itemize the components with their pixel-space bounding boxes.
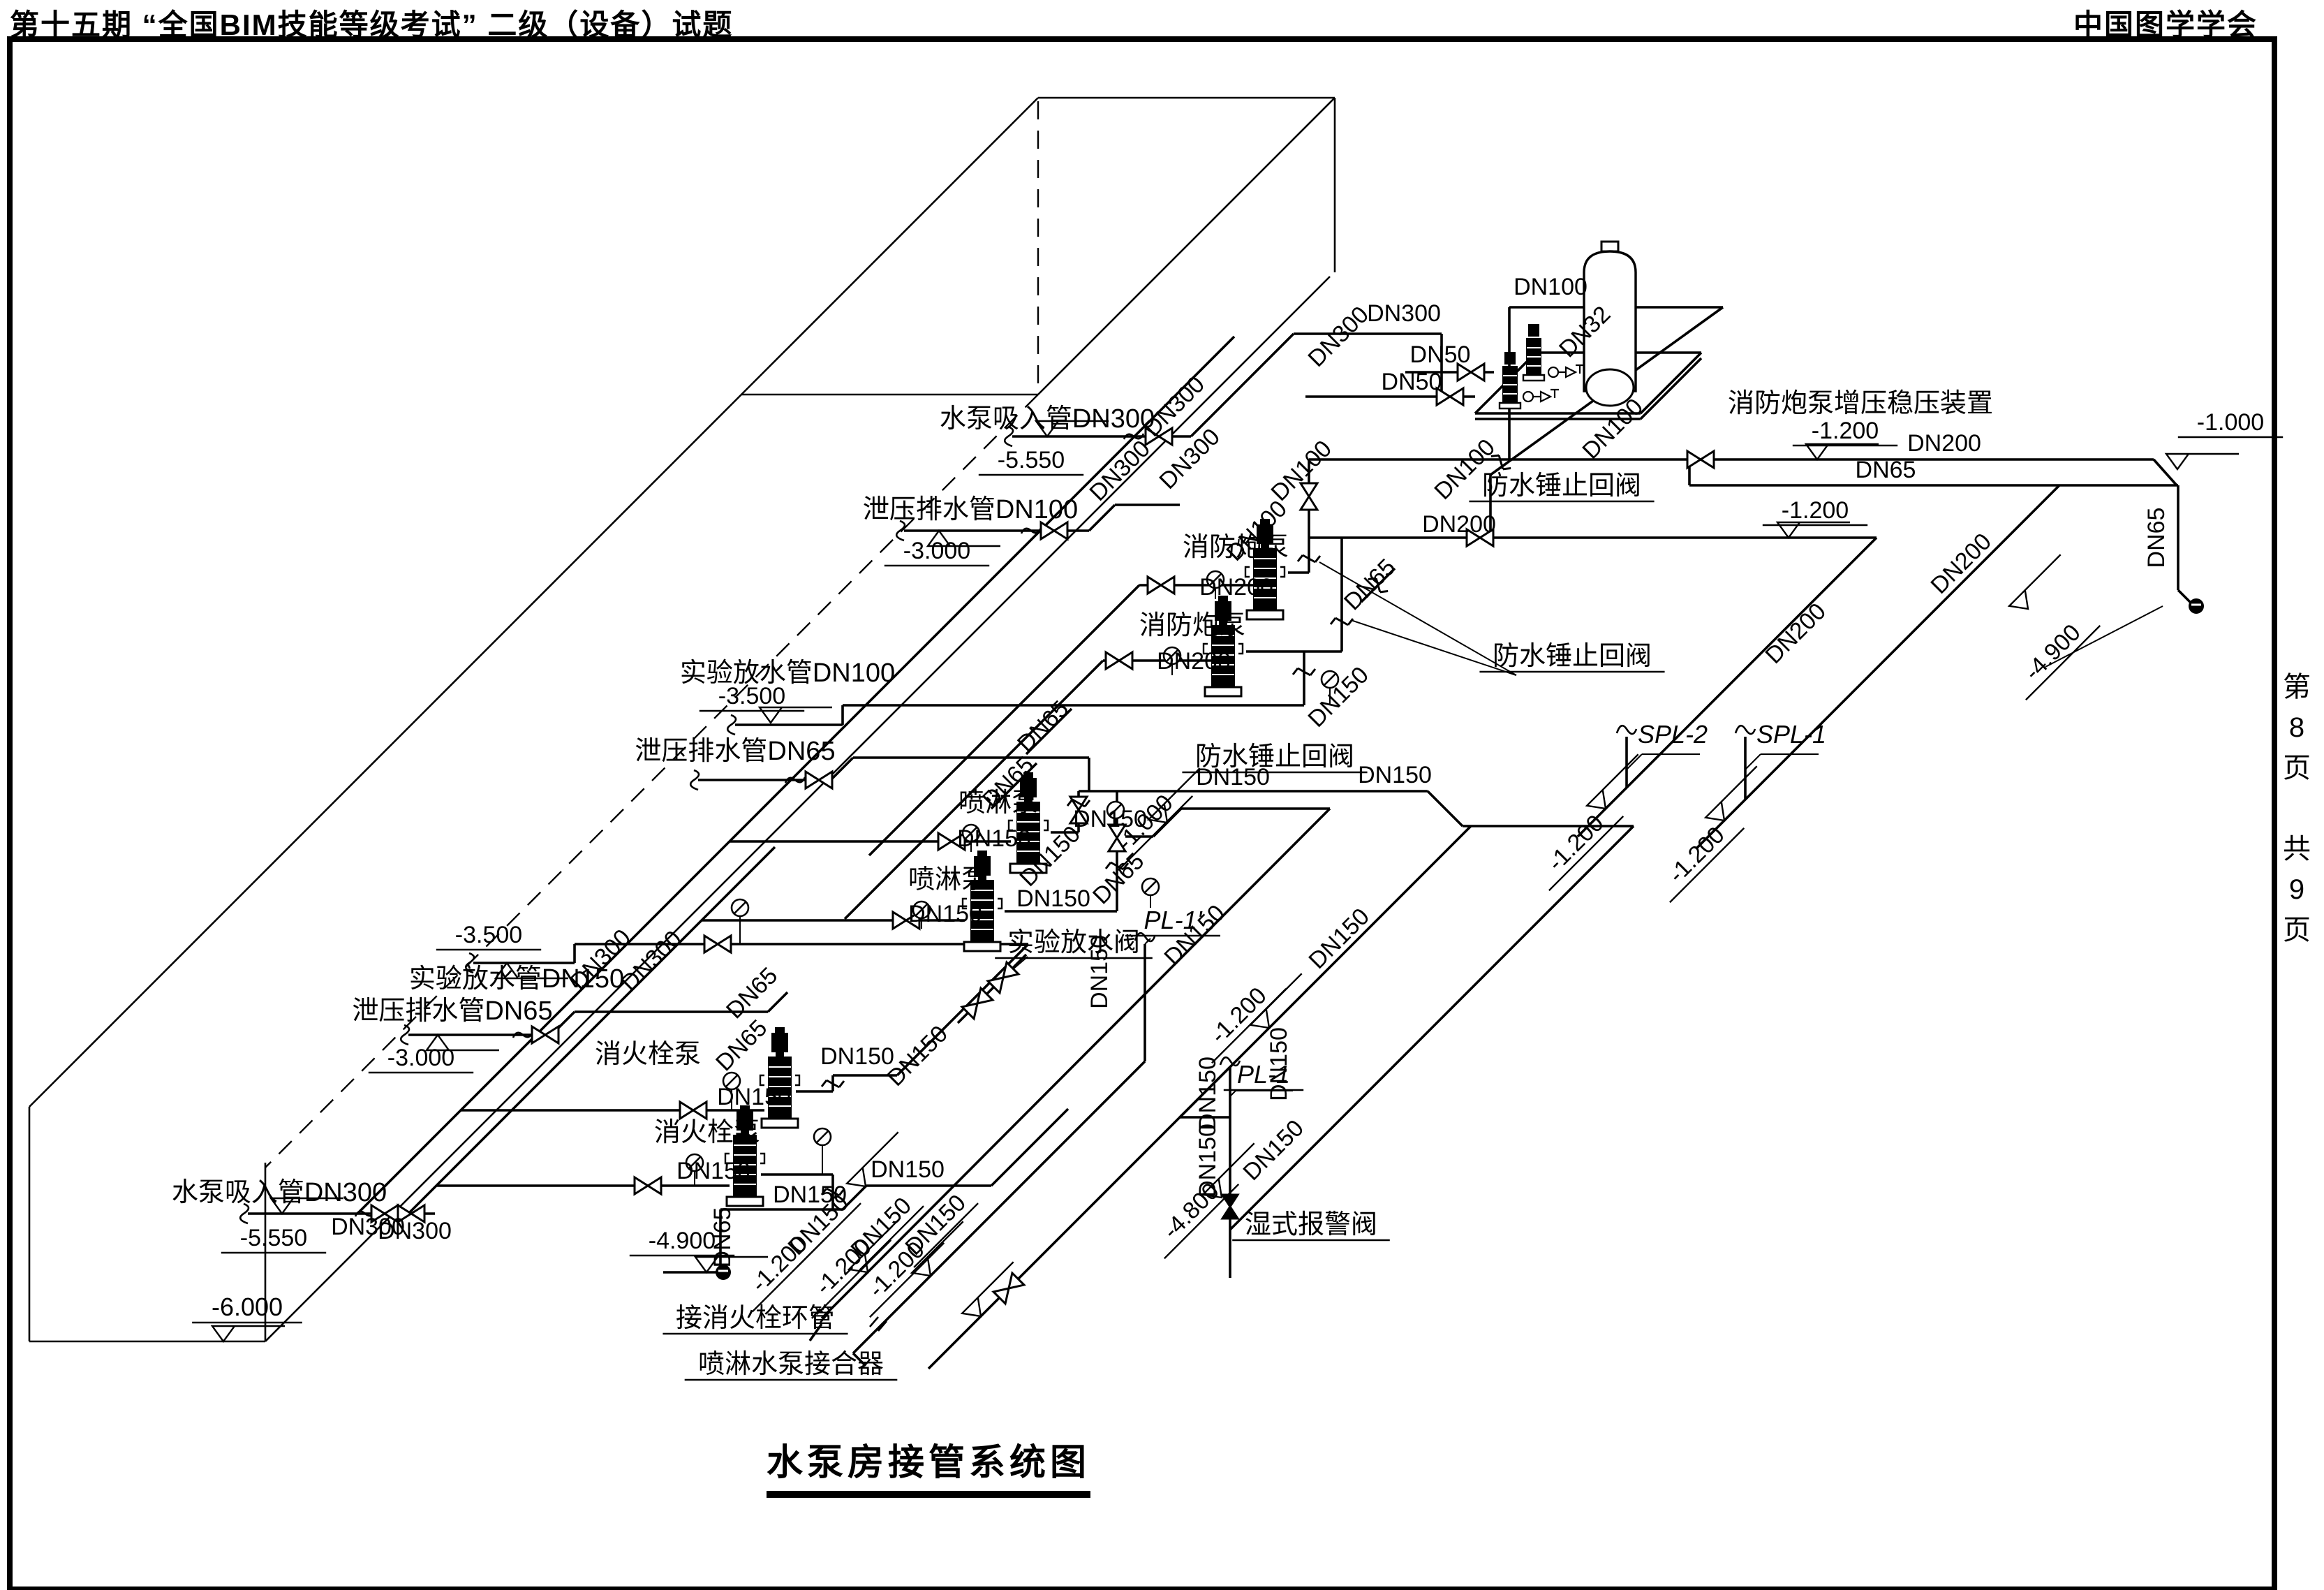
pipe-label: SPL-1 (1756, 720, 1826, 749)
shape (964, 942, 1000, 951)
pipe-label: DN150 (1238, 1114, 1309, 1186)
label-text: DN150 (1086, 935, 1113, 1009)
shape (978, 851, 986, 857)
label-text: DN100 (1513, 274, 1587, 300)
pipe-label: DN65 (709, 1207, 736, 1268)
label-text: DN300 (378, 1218, 452, 1244)
pipe-label: DN200 (1199, 574, 1273, 601)
pipe-break-icon (727, 715, 736, 735)
elevation-flag-icon (962, 1262, 1024, 1324)
label-text: DN65 (711, 1015, 772, 1076)
pipe-line (1641, 353, 1701, 413)
pipe-label: DN150 (1196, 764, 1270, 790)
label-text: DN100 (1266, 435, 1337, 506)
pipe-break-icon (1617, 726, 1636, 734)
pipe-label: -4.800 (1145, 1165, 1239, 1259)
shape (704, 936, 731, 952)
shape (727, 1197, 763, 1206)
label-text: DN150 (1196, 764, 1270, 790)
pipe-label: -3.500 (436, 922, 541, 950)
shape (1142, 878, 1159, 895)
shape (776, 1052, 783, 1057)
pipe-label: DN300 (1303, 301, 1374, 372)
shape (1523, 390, 1559, 402)
pipe-label: DN150 (871, 1156, 945, 1183)
valve-icon (806, 772, 832, 788)
label-text: -3.000 (903, 538, 970, 564)
pipe-label: DN65 (711, 1015, 772, 1076)
label-text: 实验放水管DN100 (680, 658, 895, 688)
pipe-label: DN200 (1925, 528, 1997, 599)
pipe-label: DN300 (1367, 300, 1441, 327)
pipe-label: -1.000 (2178, 409, 2283, 437)
shape (1505, 353, 1515, 364)
label-text: -3.000 (387, 1045, 454, 1071)
label-text: 湿式报警阀 (1245, 1210, 1377, 1239)
label-text: DN300 (1084, 435, 1155, 506)
label-text: 水泵吸入管DN300 (172, 1178, 387, 1207)
label-text: -1.200 (1664, 822, 1730, 888)
pipe-label: 喷淋水泵接合器 (685, 1350, 898, 1380)
label-text: 防水锤止回阀 (1493, 642, 1652, 671)
label-text: DN300 (1303, 301, 1374, 372)
pipe-line (1428, 791, 1463, 826)
pipe-label: DN150 (1358, 762, 1432, 788)
pressure-gauge-icon (1142, 878, 1159, 895)
elevation-flag-icon (2166, 454, 2239, 469)
pipe-label: -3.000 (885, 538, 989, 566)
pipe-label: -1.200 (1530, 797, 1624, 891)
valve-icon (1148, 577, 1174, 594)
shape (1041, 522, 1067, 539)
pipe-label: 泄压排水管DN65 (635, 737, 835, 766)
shape (1617, 726, 1636, 734)
pipe-line (1578, 538, 1877, 837)
pipe-label: DN150 (676, 1158, 750, 1184)
label-text: -3.500 (455, 922, 522, 948)
label-text: 泄压排水管DN100 (863, 495, 1078, 524)
label-text: 实验放水阀 (1007, 928, 1140, 957)
elevation-flag-icon (1705, 766, 1768, 828)
pipe-label: DN65 (721, 962, 783, 1024)
label-text: SPL-2 (1638, 720, 1708, 749)
pipe-label: 消防炮泵增压稳压装置 (1728, 389, 1993, 418)
shape (776, 1028, 784, 1033)
label-text: -3.500 (718, 683, 785, 709)
pipe-label: DN150 (1303, 903, 1375, 974)
label-text: DN200 (1422, 511, 1496, 538)
label-text: -6.000 (212, 1293, 283, 1321)
pipe-label: -1.200 (1650, 809, 1745, 903)
shape (680, 1102, 706, 1119)
label-text: -5.550 (998, 447, 1065, 473)
label-text: 水泵吸入管DN300 (940, 404, 1155, 434)
pipe-line (2178, 590, 2191, 603)
pipe-label: DN200 (1157, 648, 1231, 675)
pipe-label: DN65 (1856, 457, 1916, 483)
label-text: DN65 (1088, 848, 1149, 909)
elevation-flag-icon (2009, 554, 2071, 617)
pressure-gauge-icon (814, 1128, 831, 1145)
pipe-label: DN200 (1422, 511, 1496, 538)
shape (1735, 726, 1755, 734)
label-text: DN150 (871, 1156, 945, 1183)
diagram-title: 水泵房接管系统图 (767, 1433, 1090, 1498)
label-text: -1.000 (2197, 409, 2264, 436)
label-text: DN65 (1339, 554, 1400, 615)
label-text: -1.200 (1812, 418, 1879, 444)
pipe-label: -1.200 (1763, 497, 1867, 525)
pipe-label: 消防炮泵 (1139, 611, 1245, 640)
label-text: DN150 (1238, 1114, 1309, 1186)
shape (532, 1026, 558, 1043)
pipe-label: SPL-2 (1638, 720, 1708, 749)
pipe-label: DN150 (1016, 885, 1090, 912)
shape (1705, 766, 1768, 828)
shape (760, 707, 832, 723)
pipe-label: 泄压排水管DN65 (352, 996, 552, 1026)
label-text: DN65 (709, 1207, 736, 1268)
shape (806, 772, 832, 788)
shape (1601, 242, 1618, 251)
pipe-label: DN300 (1084, 435, 1155, 506)
label-text: -4.900 (2020, 619, 2086, 686)
pipe-line (768, 992, 787, 1012)
valve-icon (704, 936, 731, 952)
shape (2009, 554, 2071, 617)
shape (1500, 403, 1520, 408)
label-text: DN150 (1358, 762, 1432, 788)
pipe-break-icon (690, 770, 699, 790)
pipe-label: 消火栓泵 (654, 1118, 760, 1147)
label-text: 消防炮泵增压稳压装置 (1728, 389, 1993, 418)
label-text: -1.200 (1782, 497, 1849, 524)
shape (814, 1128, 831, 1145)
label-text: 消火栓泵 (654, 1118, 760, 1147)
pipe-label: DN200 (1907, 430, 1981, 457)
valve-icon (1106, 652, 1132, 669)
leader-line (1745, 754, 1761, 770)
label-text: DN200 (1907, 430, 1981, 457)
label-text: DN150 (676, 1158, 750, 1184)
label-text: 防水锤止回阀 (1482, 471, 1641, 501)
small-pump-icon (1523, 325, 1544, 381)
shape (1247, 610, 1283, 619)
wall-line (741, 98, 1038, 395)
shape (732, 899, 748, 916)
vertical-pump-icon (760, 1028, 799, 1128)
pipe-label: DN150 (1194, 1057, 1221, 1131)
pressure-gauge-icon (732, 899, 748, 916)
pipe-line (1641, 358, 1701, 419)
label-text: SPL-1 (1756, 720, 1826, 749)
valve-icon (680, 1102, 706, 1119)
leader-line (1319, 562, 1516, 675)
label-text: DN50 (1410, 341, 1471, 368)
pipe-label: -5.550 (221, 1225, 326, 1253)
shape (762, 1119, 798, 1128)
label-text: DN150 (957, 825, 1031, 852)
pipe-label: -6.000 (192, 1293, 302, 1323)
label-text: DN150 (1194, 1057, 1221, 1131)
elevation-flag-icon (760, 707, 832, 723)
pipe-label: DN300 (378, 1218, 452, 1244)
label-text: 泄压排水管DN65 (352, 996, 552, 1026)
label-text: 消防炮泵 (1139, 611, 1245, 640)
small-pump-icon (1500, 353, 1520, 408)
shape (1587, 754, 1649, 816)
pipe-label: DN65 (1339, 554, 1400, 615)
valve-icon (532, 1026, 558, 1043)
pipe-label: DN100 (1266, 435, 1337, 506)
label-text: DN50 (1382, 369, 1442, 395)
label-text: DN65 (2143, 508, 2170, 568)
shape (2166, 454, 2239, 469)
label-text: -1.200 (1543, 810, 1609, 876)
pipe-line (1696, 485, 2059, 848)
pipe-break-icon (1735, 726, 1755, 734)
label-text: 泄压排水管DN65 (635, 737, 835, 766)
pipe-label: DN150 (717, 1084, 791, 1110)
pipe-label: DN50 (1410, 341, 1471, 368)
pipe-line (991, 1109, 1068, 1186)
shape (962, 1262, 1024, 1324)
piping-diagram-canvas: 水泵吸入管DN300-5.550泄压排水管DN100-3.000实验放水管DN1… (0, 0, 2324, 1590)
shape (772, 1033, 787, 1052)
valve-icon (635, 1177, 661, 1194)
label-text: 消火栓泵 (595, 1040, 701, 1069)
label-text: DN65 (721, 962, 783, 1024)
pipe-label: -1.200 (1793, 418, 1897, 446)
shape (1148, 577, 1174, 594)
shape (727, 715, 736, 735)
shape (1205, 687, 1241, 696)
label-text: DN200 (1199, 574, 1273, 601)
label-text: DN200 (1157, 648, 1231, 675)
label-text: -5.550 (240, 1225, 307, 1251)
pump-fitting-icon (1523, 390, 1559, 402)
pipe-line (1191, 334, 1294, 436)
pipe-label: 消火栓泵 (595, 1040, 701, 1069)
pipe-label: -5.550 (979, 447, 1083, 475)
pipe-line (1089, 505, 1115, 531)
label-text: DN200 (1925, 528, 1997, 599)
pipe-label: 水泵吸入管DN300 (940, 404, 1155, 434)
pipe-line (357, 337, 1234, 1214)
shape (1523, 375, 1544, 381)
label-text: -4.900 (649, 1228, 716, 1254)
label-text: DN150 (1016, 885, 1090, 912)
label-text: DN150 (908, 901, 982, 927)
shape (690, 770, 699, 790)
shape (2189, 599, 2203, 613)
pipe-label: DN50 (1382, 369, 1442, 395)
pipe-label: DN65 (1088, 848, 1149, 909)
label-text: PL-1 (1237, 1060, 1290, 1089)
label-text: DN150 (820, 1043, 894, 1070)
pipe-label: 水泵吸入管DN300 (172, 1178, 387, 1207)
pipe-label: DN200 (1760, 598, 1831, 669)
label-text: DN200 (1760, 598, 1831, 669)
pipe-label: 防水锤止回阀 (1469, 471, 1654, 501)
pipe-label: DN150 (908, 901, 982, 927)
pipe-label: DN100 (1513, 274, 1587, 300)
valve-icon (1041, 522, 1067, 539)
label-text: DN150 (1303, 903, 1375, 974)
leader-line (1627, 754, 1642, 770)
label-text: DN65 (1856, 457, 1916, 483)
pipe-label: DN65 (2143, 508, 2170, 568)
shape (1548, 365, 1584, 377)
pipe-label: DN150 (957, 825, 1031, 852)
pipe-label: 实验放水阀 (995, 928, 1153, 958)
pipe-label: DN150 (820, 1043, 894, 1070)
shape (1687, 451, 1714, 468)
pipe-label: 防水锤止回阀 (1479, 642, 1664, 672)
wall-line (1038, 98, 1335, 395)
shape (635, 1177, 661, 1194)
valve-icon (1687, 451, 1714, 468)
pipe-label: 湿式报警阀 (1232, 1210, 1390, 1240)
drawing-sheet: 第十五期 “全国BIM技能等级考试” 二级（设备）试题 中国图学学会 第 8 页… (0, 0, 2324, 1590)
pipe-label: 喷淋泵 (908, 865, 988, 895)
shape (1106, 652, 1132, 669)
label-text: 喷淋水泵接合器 (698, 1350, 884, 1379)
elevation-flag-icon (1587, 754, 1649, 816)
label-text: DN300 (1367, 300, 1441, 327)
pipe-label: 实验放水管DN100 (680, 658, 895, 688)
pipe-label: -4.900 (2006, 606, 2101, 700)
pipe-label: DN150 (1086, 935, 1113, 1009)
label-text: DN150 (717, 1084, 791, 1110)
shape (1529, 325, 1539, 336)
pipe-cap-icon (2189, 599, 2203, 613)
pump-fitting-icon (1548, 365, 1584, 377)
label-text: -4.800 (1158, 1178, 1224, 1244)
pipe-label: 泄压排水管DN100 (863, 495, 1078, 524)
label-text: 喷淋泵 (908, 865, 988, 895)
